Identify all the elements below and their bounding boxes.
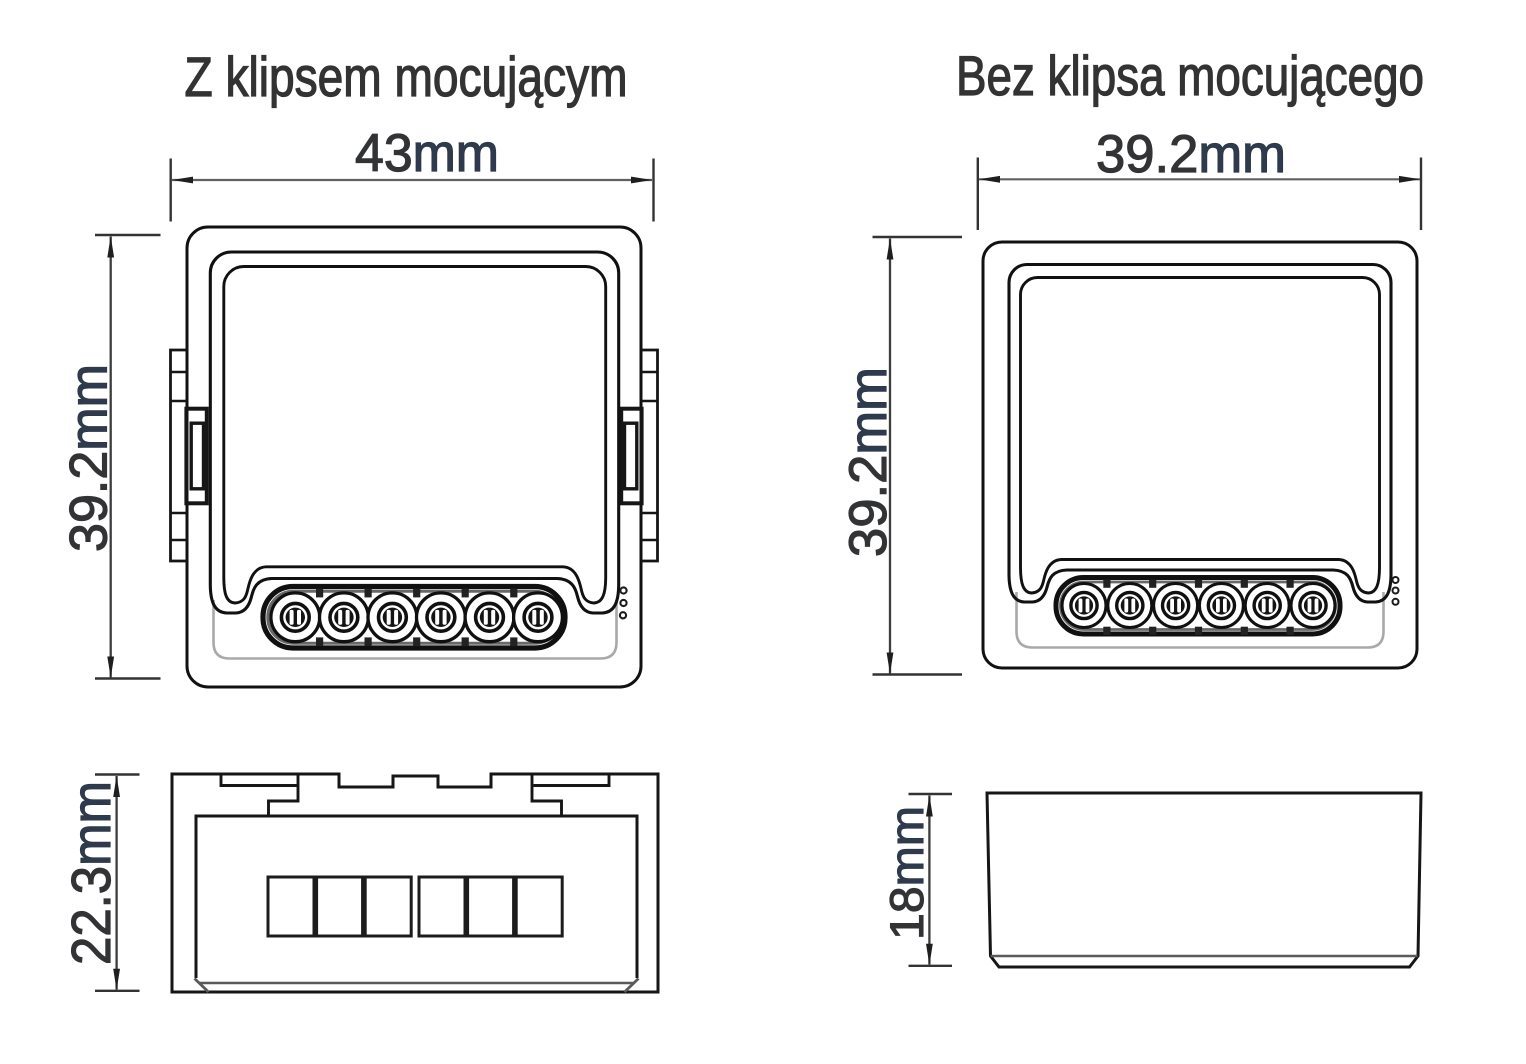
svg-text:22.3mm: 22.3mm — [60, 781, 122, 965]
svg-text:18mm: 18mm — [880, 806, 933, 940]
svg-text:Bez klipsa mocującego: Bez klipsa mocującego — [956, 44, 1424, 107]
svg-text:Z klipsem mocującym: Z klipsem mocującym — [185, 45, 628, 108]
svg-text:39.2mm: 39.2mm — [1096, 125, 1286, 184]
svg-text:43mm: 43mm — [355, 124, 499, 183]
